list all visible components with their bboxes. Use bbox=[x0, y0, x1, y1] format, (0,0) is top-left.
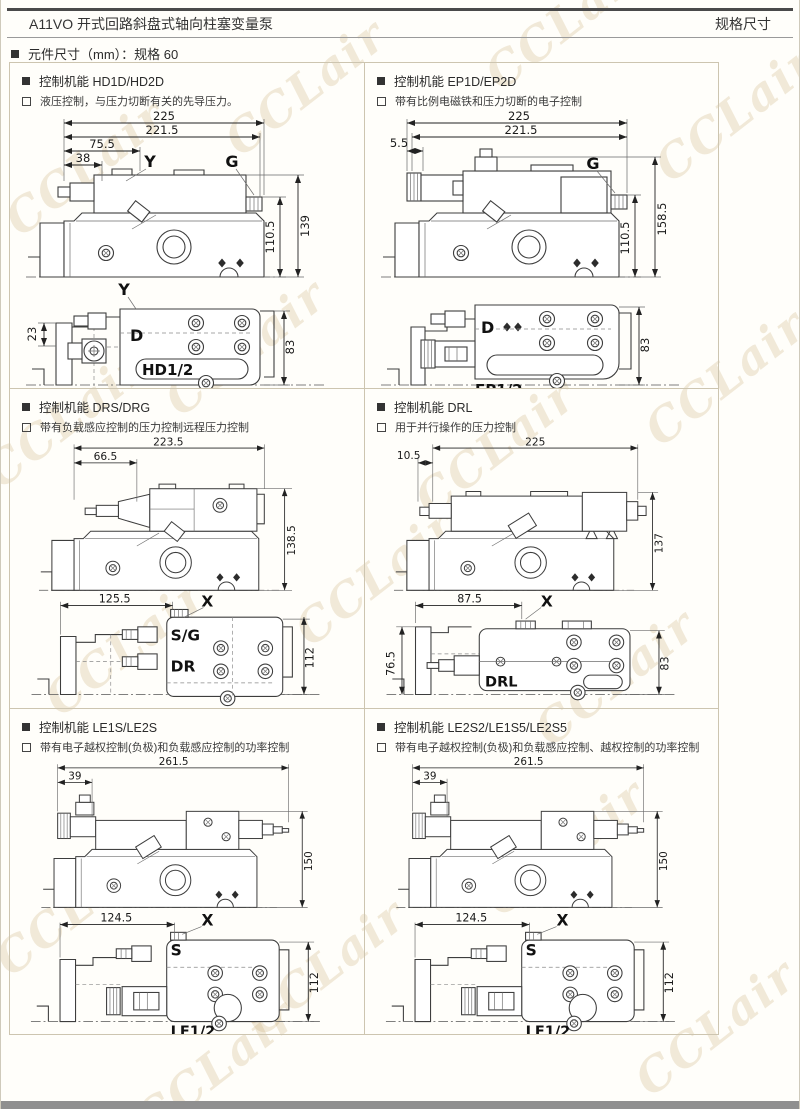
panel-le1s-le2s: 控制机能 LE1S/LE2S 带有电子越权控制(负极)和负载感应控制的功率控制 bbox=[10, 709, 365, 1034]
panel-title: 控制机能 HD1D/HD2D bbox=[39, 71, 164, 90]
section-title: 元件尺寸（mm）：规格 60 bbox=[11, 44, 178, 63]
dim-width-label: 75.5 bbox=[89, 137, 115, 151]
outline-square-bullet-icon bbox=[377, 423, 386, 432]
spec-grid: 控制机能 HD1D/HD2D 液压控制，与压力切断有关的先导压力。 bbox=[9, 62, 719, 1035]
dim-height-label: 83 bbox=[659, 656, 672, 670]
panel-title: 控制机能 DRL bbox=[394, 397, 472, 416]
dim-height-label: 150 bbox=[658, 851, 670, 871]
drl-side-view-drawing: 225 10.5 137 bbox=[392, 437, 697, 594]
pump-side-view bbox=[396, 795, 643, 907]
filled-square-bullet-icon bbox=[377, 77, 385, 85]
dim-width-label: 124.5 bbox=[100, 912, 132, 925]
dim-width-label: 225 bbox=[508, 111, 530, 123]
dim-width-label: 261.5 bbox=[159, 757, 189, 768]
pump-side-view bbox=[41, 795, 288, 907]
panel-title: 控制机能 LE1S/LE2S bbox=[39, 717, 157, 736]
catalog-page: CCLair CCLair CCLair CCLair CCLair CCLai… bbox=[0, 0, 800, 1109]
dim-height-label: 137 bbox=[652, 533, 665, 553]
dim-width-label: 221.5 bbox=[505, 123, 538, 137]
header-right-label: 规格尺寸 bbox=[715, 14, 771, 34]
le-side-view-drawing: 261.5 39 150 bbox=[39, 757, 339, 911]
port-label-g: G bbox=[225, 152, 238, 171]
panel-hd1d-hd2d: 控制机能 HD1D/HD2D 液压控制，与压力切断有关的先导压力。 bbox=[10, 63, 365, 389]
ep-side-view-drawing: 225 221.5 5.5 G 158.5 110.5 bbox=[379, 111, 709, 281]
section-title-text: 元件尺寸（mm）：规格 60 bbox=[28, 44, 178, 63]
drs-top-view-drawing: 125.5 X S/G DR 112 bbox=[29, 594, 349, 708]
dim-width-label: 261.5 bbox=[514, 757, 544, 768]
hd-top-view-drawing: Y 23 D HD1/2 83 bbox=[24, 281, 354, 389]
hd-side-view-drawing: 225 221.5 75.5 38 Y G 139 110.5 bbox=[24, 111, 354, 281]
dim-height-label: 76.5 bbox=[384, 651, 397, 676]
dim-height-label: 112 bbox=[663, 972, 676, 993]
pump-top-view bbox=[381, 305, 679, 389]
pump-side-view bbox=[381, 149, 641, 277]
port-label-x: X bbox=[201, 594, 213, 611]
dim-height-label: 112 bbox=[308, 972, 321, 993]
panel-desc: 带有电子越权控制(负极)和负载感应控制、越权控制的功率控制 bbox=[395, 739, 699, 755]
port-label-s: S bbox=[526, 942, 537, 960]
le-top-view-drawing: 124.5 X S 112 LE1/2 bbox=[29, 911, 349, 1034]
dim-height-label: 138.5 bbox=[284, 525, 297, 555]
dim-width-label: 87.5 bbox=[457, 594, 482, 606]
port-label-y: Y bbox=[117, 281, 130, 299]
dim-height-label: 139 bbox=[298, 215, 312, 237]
model-label: LE1/2 bbox=[526, 1024, 571, 1034]
filled-square-bullet-icon bbox=[377, 403, 385, 411]
filled-square-bullet-icon bbox=[22, 403, 30, 411]
outline-square-bullet-icon bbox=[22, 423, 31, 432]
ep-top-view-drawing: D EP1/2 83 bbox=[379, 281, 709, 389]
dim-width-label: 38 bbox=[76, 151, 91, 165]
panel-le2s2-le1s5-le2s5: 控制机能 LE2S2/LE1S5/LE2S5 带有电子越权控制(负极)和负载感应… bbox=[365, 709, 719, 1034]
dim-height-label: 83 bbox=[283, 340, 297, 355]
pump-side-view bbox=[38, 484, 278, 590]
dim-width-label: 221.5 bbox=[146, 123, 179, 137]
outline-square-bullet-icon bbox=[377, 743, 386, 752]
dim-width-label: 225 bbox=[525, 437, 545, 448]
filled-square-bullet-icon bbox=[22, 77, 30, 85]
model-label: EP1/2 bbox=[475, 381, 523, 389]
le-top-view-drawing: 124.5 X S 112 LE1/2 bbox=[384, 911, 704, 1034]
port-label-dr: DR bbox=[171, 657, 196, 675]
dim-width-label: 10.5 bbox=[396, 449, 420, 462]
outline-square-bullet-icon bbox=[22, 97, 31, 106]
filled-square-bullet-icon bbox=[11, 50, 19, 58]
panel-title: 控制机能 LE2S2/LE1S5/LE2S5 bbox=[394, 717, 567, 736]
port-label-g: G bbox=[586, 154, 599, 173]
dim-height-label: 150 bbox=[303, 851, 315, 871]
port-label-d: D bbox=[481, 318, 494, 337]
dim-width-label: 5.5 bbox=[390, 136, 408, 150]
port-label-x: X bbox=[201, 912, 213, 930]
dim-height-label: 158.5 bbox=[655, 203, 669, 236]
filled-square-bullet-icon bbox=[377, 723, 385, 731]
port-label-y: Y bbox=[143, 152, 156, 171]
le-side-view-drawing: 261.5 39 150 bbox=[394, 757, 694, 911]
pump-side-view bbox=[393, 491, 645, 590]
dim-height-label: 83 bbox=[638, 338, 652, 353]
pump-top-view bbox=[387, 621, 675, 700]
drs-side-view-drawing: 223.5 66.5 138.5 bbox=[37, 437, 342, 594]
port-label-x: X bbox=[556, 912, 568, 930]
dim-width-label: 225 bbox=[153, 111, 175, 123]
filled-square-bullet-icon bbox=[22, 723, 30, 731]
outline-square-bullet-icon bbox=[22, 743, 31, 752]
model-label: HD1/2 bbox=[142, 361, 193, 379]
dim-width-label: 125.5 bbox=[99, 594, 131, 606]
drl-top-view-drawing: 87.5 X 76.5 DRL 83 bbox=[384, 594, 704, 708]
panel-desc: 带有电子越权控制(负极)和负载感应控制的功率控制 bbox=[40, 739, 289, 755]
dim-width-label: 223.5 bbox=[153, 437, 183, 448]
panel-ep1d-ep2d: 控制机能 EP1D/EP2D 带有比例电磁铁和压力切断的电子控制 bbox=[365, 63, 719, 389]
panel-desc: 带有负载感应控制的压力控制远程压力控制 bbox=[40, 419, 249, 435]
panel-desc: 带有比例电磁铁和压力切断的电子控制 bbox=[395, 93, 582, 109]
port-label-x: X bbox=[541, 594, 553, 611]
port-label-sg: S/G bbox=[171, 626, 200, 644]
dim-height-label: 110.5 bbox=[263, 221, 277, 254]
outline-square-bullet-icon bbox=[377, 97, 386, 106]
page-title: A11VO 开式回路斜盘式轴向柱塞变量泵 bbox=[29, 14, 273, 34]
dim-width-label: 66.5 bbox=[93, 450, 117, 463]
port-label-d: D bbox=[130, 326, 143, 345]
model-label: DRL bbox=[485, 675, 517, 691]
dim-width-label: 39 bbox=[423, 771, 436, 783]
dim-height-label: 112 bbox=[304, 647, 317, 668]
panel-desc: 用于并行操作的压力控制 bbox=[395, 419, 516, 435]
panel-drs-drg: 控制机能 DRS/DRG 带有负载感应控制的压力控制远程压力控制 bbox=[10, 389, 365, 709]
dim-height-label: 23 bbox=[25, 327, 39, 342]
bottom-page-bar bbox=[1, 1101, 799, 1109]
model-label: LE1/2 bbox=[171, 1024, 216, 1034]
dim-width-label: 124.5 bbox=[455, 912, 487, 925]
dim-width-label: 39 bbox=[68, 771, 81, 783]
port-label-s: S bbox=[171, 942, 182, 960]
panel-title: 控制机能 EP1D/EP2D bbox=[394, 71, 516, 90]
page-header: A11VO 开式回路斜盘式轴向柱塞变量泵 规格尺寸 bbox=[7, 8, 793, 38]
panel-drl: 控制机能 DRL 用于并行操作的压力控制 bbox=[365, 389, 719, 709]
panel-title: 控制机能 DRS/DRG bbox=[39, 397, 150, 416]
panel-desc: 液压控制，与压力切断有关的先导压力。 bbox=[40, 93, 238, 109]
dim-height-label: 110.5 bbox=[618, 222, 632, 255]
